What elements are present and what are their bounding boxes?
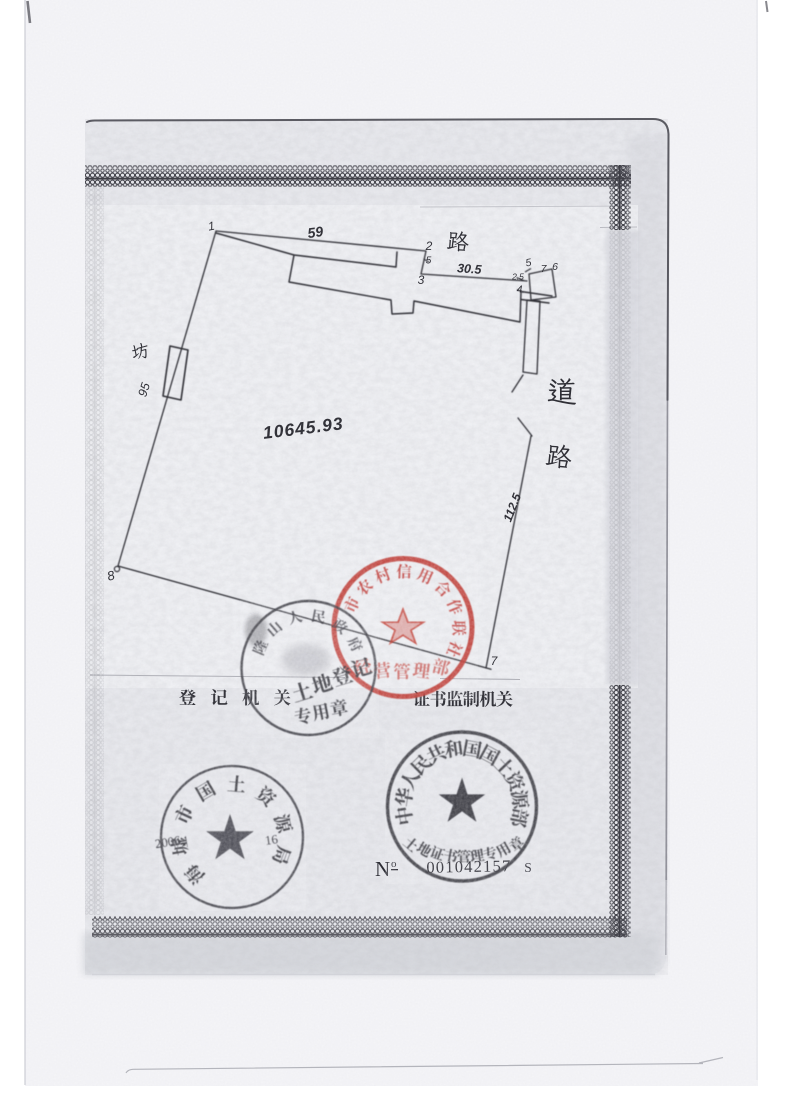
- svg-text:5: 5: [426, 256, 432, 267]
- svg-text:4: 4: [517, 284, 523, 296]
- svg-text:6: 6: [552, 261, 558, 273]
- svg-text:30.5: 30.5: [457, 261, 483, 277]
- svg-text:3: 3: [418, 273, 425, 287]
- svg-text:2.5: 2.5: [511, 272, 524, 282]
- svg-text:59: 59: [306, 223, 324, 241]
- svg-text:2: 2: [425, 239, 433, 253]
